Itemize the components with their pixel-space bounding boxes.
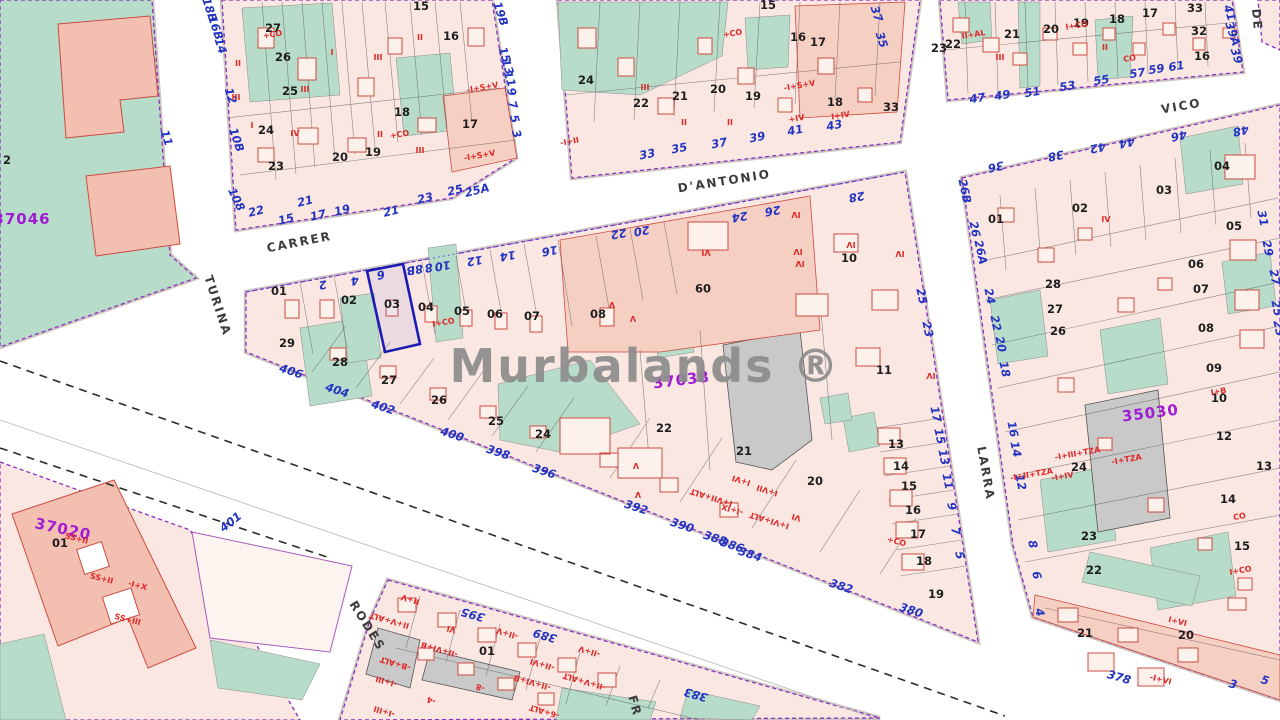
cadastral-map-svg: CARRERTURINAD'ANTONIOVICOLARRARODESDEFR3… — [0, 0, 1280, 720]
building-height-annotation: IV — [895, 249, 905, 258]
street-name-label: LARRA — [974, 445, 997, 501]
house-number-label: 26 — [764, 203, 782, 220]
parcel-number-label: 15 — [901, 479, 917, 493]
house-number-label: 21 — [382, 202, 401, 219]
street-name-label: CARRER — [265, 229, 332, 255]
street-name-label: D'ANTONIO — [677, 167, 772, 196]
parcel-number-label: 17 — [462, 117, 478, 131]
parcel-number-label: 05 — [454, 304, 470, 318]
parcel-number-label: 19 — [365, 145, 381, 159]
house-number-label: 28 — [848, 189, 866, 206]
parcel-number-label: 07 — [1193, 282, 1209, 296]
parcel-number-label: 17 — [910, 527, 926, 541]
parcel-number-label: 16 — [1194, 49, 1210, 63]
house-number-label: 57 — [1128, 65, 1146, 81]
house-number-label: 42 — [1089, 139, 1109, 156]
parcel-number-label: 20 — [1178, 628, 1194, 642]
street-name-label: DE — [1249, 8, 1265, 31]
parcel-number-label: 18 — [916, 554, 932, 568]
parcel-number-label: 24 — [535, 427, 551, 441]
parcel-number-label: 26 — [275, 50, 291, 64]
house-number-label: 17 — [309, 206, 328, 223]
parcel-number-label: 25 — [282, 84, 298, 98]
parcel-number-label: 12 — [1216, 429, 1232, 443]
parcel-number-label: 26 — [1050, 324, 1066, 338]
building-height-annotation: II — [377, 130, 383, 139]
building-37046-b — [86, 166, 180, 256]
parcel-number-label: 14 — [1220, 492, 1236, 506]
parcel-number-label: 15 — [1234, 539, 1250, 553]
parcel-number-label: 26 — [431, 393, 447, 407]
parcel-number-label: 17 — [1142, 6, 1158, 20]
parcel-number-label: 20 — [1043, 22, 1059, 36]
parcel-number-label: 09 — [695, 281, 711, 295]
building-height-annotation: III — [416, 146, 425, 155]
house-number-label: 53 — [1058, 78, 1076, 94]
house-number-label: 8B — [405, 262, 424, 279]
parcel-number-label: 18 — [1109, 12, 1125, 26]
house-number-label: 51 — [1023, 84, 1041, 100]
parcel-number-label: 17 — [810, 35, 826, 49]
parcel-number-label: 22 — [633, 96, 649, 110]
parcel-401 — [192, 532, 352, 652]
building-height-annotation: V — [632, 461, 639, 470]
parcel-number-label: 08 — [590, 307, 606, 321]
parcel-number-label: 21 — [672, 89, 688, 103]
parcel-number-label: 28 — [1045, 277, 1061, 291]
house-number-label: 22 — [610, 226, 628, 243]
building-height-annotation: II — [1102, 43, 1108, 52]
parcel-number-label: 19 — [745, 89, 761, 103]
parcel-number-label: 2 — [3, 153, 11, 167]
building-height-annotation: III — [996, 53, 1005, 62]
street-name-label: TURINA — [201, 274, 234, 338]
house-number-label: 10 — [434, 258, 452, 275]
parcel-number-label: 16 — [905, 503, 921, 517]
parcel-number-label: 07 — [524, 309, 540, 323]
parcel-number-label: 05 — [1226, 219, 1242, 233]
building-height-annotation: IV — [1101, 215, 1111, 224]
parcel-number-label: 02 — [1072, 201, 1088, 215]
parcel-number-label: 03 — [1156, 183, 1172, 197]
house-number-label: 36 — [987, 158, 1006, 175]
house-number-label: 33 — [638, 146, 656, 163]
parcel-number-label: 15 — [413, 0, 429, 13]
parcel-number-label: 01 — [479, 644, 495, 658]
parcel-number-label: 29 — [279, 336, 295, 350]
house-number-label: 39 — [748, 129, 766, 146]
parcel-number-label: 01 — [271, 284, 287, 298]
building-height-annotation: III — [641, 83, 650, 92]
parcel-number-label: 13 — [888, 437, 904, 451]
house-number-label: 59 — [1147, 61, 1165, 77]
parcel-number-label: 18 — [827, 95, 843, 109]
house-number-label: 23 — [416, 189, 435, 206]
house-number-label: 20 — [633, 223, 651, 240]
parcel-number-label: 20 — [807, 474, 823, 488]
parcel-number-label: 23 — [1081, 529, 1097, 543]
parcel-number-label: 14 — [893, 459, 909, 473]
parcel-number-label: 24 — [578, 73, 594, 87]
parcel-number-label: 19 — [928, 587, 944, 601]
parcel-number-label: 33 — [883, 100, 899, 114]
street-name-label: VICO — [1160, 96, 1203, 117]
building-height-annotation: VI — [701, 248, 710, 257]
parcel-number-label: 09 — [1206, 361, 1222, 375]
house-number-label: 14 — [499, 248, 517, 265]
parcel-number-label: 24 — [258, 123, 274, 137]
parcel-number-label: 04 — [418, 300, 434, 314]
building-height-annotation: V — [629, 314, 636, 323]
parcel-number-label: 01 — [988, 212, 1004, 226]
parcel-number-label: 18 — [394, 105, 410, 119]
building-height-annotation: II — [417, 33, 423, 42]
house-number-label: 24 — [731, 209, 749, 226]
parcel-number-label: 11 — [876, 363, 892, 377]
parcel-number-label: 25 — [488, 414, 504, 428]
cadastral-map-image: CARRERTURINAD'ANTONIOVICOLARRARODESDEFR3… — [0, 0, 1280, 720]
parcel-number-label: 28 — [332, 355, 348, 369]
building-height-annotation: IV — [793, 247, 803, 256]
parcel-number-label: 27 — [1047, 302, 1063, 316]
block-id-label: 37046 — [0, 210, 51, 228]
parcel-number-label: 24 — [1071, 460, 1087, 474]
house-number-label: 15 — [277, 210, 296, 227]
house-number-label: 44 — [1118, 134, 1138, 151]
house-number-label: 378 — [1106, 667, 1133, 687]
parcel-number-label: 21 — [1004, 27, 1020, 41]
building-height-annotation: I — [251, 121, 254, 130]
parcel-number-label: 08 — [1198, 321, 1214, 335]
parcel-number-label: 04 — [1214, 159, 1230, 173]
parcel-number-label: 22 — [1086, 563, 1102, 577]
parcel-number-label: 15 — [760, 0, 776, 12]
parcel-number-label: 20 — [710, 82, 726, 96]
parcel-number-label: 10 — [841, 251, 857, 265]
building-height-annotation: III — [301, 85, 310, 94]
parcel-number-label: 16 — [790, 30, 806, 44]
parcel-number-label: 21 — [1077, 626, 1093, 640]
parcel-number-label: 06 — [487, 307, 503, 321]
parcel-number-label: 02 — [341, 293, 357, 307]
parcel-number-label: 06 — [1188, 257, 1204, 271]
parcel-number-label: 13 — [1256, 459, 1272, 473]
parcel-number-label: 32 — [1191, 24, 1207, 38]
house-number-label: 55 — [1092, 72, 1110, 88]
building-height-annotation: II — [681, 118, 687, 127]
parcel-number-label: 23 — [268, 159, 284, 173]
house-number-label: 37 — [710, 135, 728, 152]
building-height-annotation: III — [232, 93, 241, 102]
house-number-label: 61 — [1167, 58, 1185, 74]
house-number-label: 35 — [670, 140, 688, 157]
parcel-number-label: 16 — [443, 29, 459, 43]
parcel-number-label: 03 — [384, 297, 400, 311]
building-height-annotation: IV — [290, 129, 300, 138]
building-height-annotation: V — [608, 300, 615, 309]
house-number-label: 38 — [1047, 147, 1066, 164]
watermark-text: Murbalands ® — [449, 339, 840, 393]
building-height-annotation: III — [374, 53, 383, 62]
building-height-annotation: IV — [846, 240, 856, 249]
house-number-label: 49 — [992, 87, 1011, 103]
house-number-label: 12 — [466, 253, 484, 270]
building-height-annotation: IV — [791, 210, 801, 219]
house-number-label: 19 — [333, 201, 352, 218]
house-number-label: 401 — [216, 509, 244, 535]
house-number-label: 16 — [541, 243, 559, 260]
building-height-annotation: I — [331, 48, 334, 57]
building-height-annotation: II — [727, 118, 733, 127]
parcel-number-label: 27 — [381, 373, 397, 387]
building-height-annotation: V — [634, 490, 641, 499]
parcel-number-label: 33 — [1187, 1, 1203, 15]
parcel-number-label: 22 — [656, 421, 672, 435]
building-height-annotation: IV — [795, 259, 805, 268]
parcel-number-label: 22 — [945, 37, 961, 51]
parcel-number-label: 21 — [736, 444, 752, 458]
house-number-label: 25 — [446, 181, 465, 198]
house-number-label: 47 — [967, 90, 986, 106]
building-height-annotation: IV — [926, 371, 936, 380]
building-height-annotation: II — [235, 59, 241, 68]
parcel-number-label: 20 — [332, 150, 348, 164]
